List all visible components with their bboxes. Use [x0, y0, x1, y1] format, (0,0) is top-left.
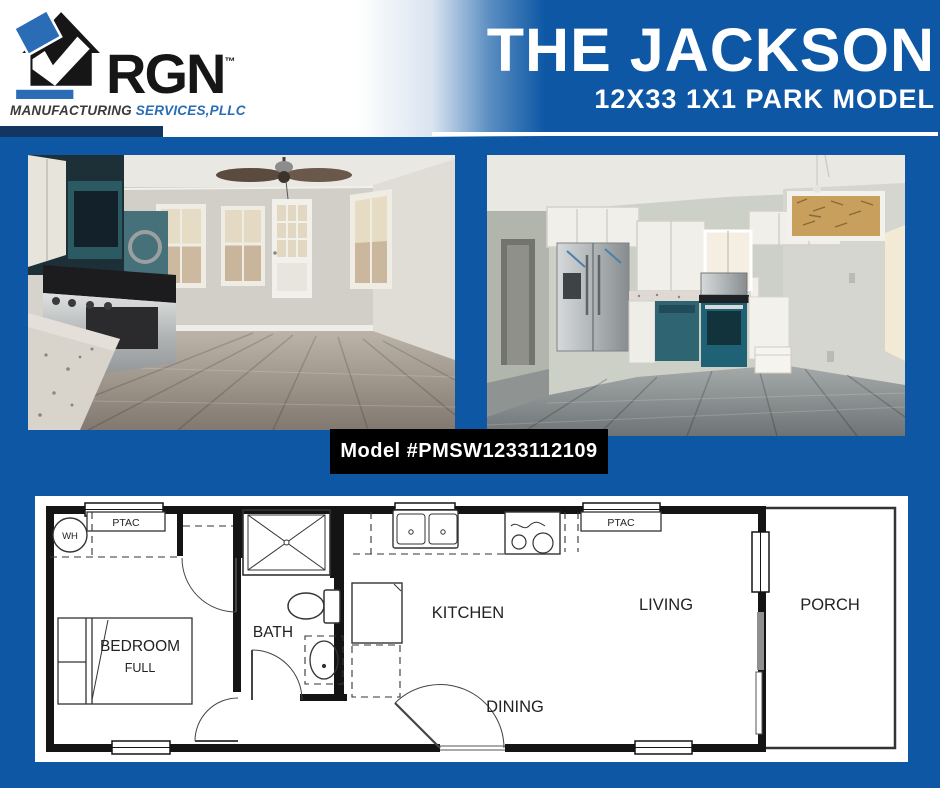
house-check-icon: [10, 6, 102, 100]
entry-door: [395, 685, 504, 748]
closet-door: [182, 558, 236, 612]
vanity-sink: [310, 641, 338, 679]
living-label: LIVING: [639, 596, 693, 614]
cardboard-box: [755, 347, 791, 373]
model-subtitle: 12X33 1X1 PARK MODEL: [487, 84, 935, 115]
window: [350, 189, 392, 289]
ptac-left-label: PTAC: [112, 517, 140, 529]
outlet: [849, 273, 855, 283]
hallway: [487, 211, 549, 417]
range-cooktop: [505, 512, 560, 554]
water-heater-label: WH: [62, 531, 78, 542]
window: [221, 206, 265, 286]
entry-threshold: [440, 746, 505, 750]
window: [885, 225, 905, 361]
shower: [243, 510, 330, 575]
outlet: [827, 351, 834, 362]
navy-accent-bar: [0, 126, 163, 137]
porch-label: PORCH: [800, 596, 860, 614]
floorplan-drawing: WH PTAC PTAC: [35, 496, 908, 762]
toilet: [288, 590, 340, 623]
title-block: THE JACKSON 12X33 1X1 PARK MODEL: [487, 20, 935, 115]
model-number: Model #PMSW1233112109: [340, 440, 597, 463]
model-badge: Model #PMSW1233112109: [330, 429, 608, 474]
range: [699, 273, 749, 367]
brand-text: RGN: [106, 42, 224, 105]
photo-interior-living: [28, 155, 455, 430]
porch-door-leaf: [756, 672, 762, 734]
ptac-right-label: PTAC: [607, 517, 635, 529]
porch-door: [757, 612, 764, 670]
bedroom-label: BEDROOM: [100, 638, 180, 655]
entry-door: [272, 199, 312, 298]
brand-logo: RGN™ MANUFACTURING SERVICES,PLLC: [10, 6, 246, 118]
dining-label: DINING: [486, 698, 544, 716]
refrigerator: [557, 243, 629, 351]
kitchen-sink: [393, 510, 458, 548]
brand-tagline: MANUFACTURING SERVICES,PLLC: [10, 103, 246, 118]
model-title: THE JACKSON: [487, 20, 935, 81]
kitchen-label: KITCHEN: [432, 604, 504, 622]
bath-label: BATH: [253, 624, 293, 641]
title-underline: [432, 132, 938, 136]
brand-name: RGN™: [106, 47, 235, 100]
bedroom-size-label: FULL: [125, 661, 156, 675]
bedroom-door: [195, 698, 238, 741]
trademark-symbol: ™: [224, 56, 235, 68]
header: RGN™ MANUFACTURING SERVICES,PLLC THE JAC…: [0, 0, 940, 137]
photo-interior-kitchen: [487, 155, 905, 436]
porch-outline: [766, 508, 895, 748]
tagline-services: SERVICES,PLLC: [136, 103, 246, 118]
bath-door: [252, 650, 302, 700]
tagline-manufacturing: MANUFACTURING: [10, 103, 136, 118]
flyer-page: RGN™ MANUFACTURING SERVICES,PLLC THE JAC…: [0, 0, 940, 788]
refrigerator-symbol: [352, 583, 402, 643]
osb-transom-panel: [787, 191, 885, 241]
floorplan-panel: WH PTAC PTAC: [35, 496, 908, 762]
